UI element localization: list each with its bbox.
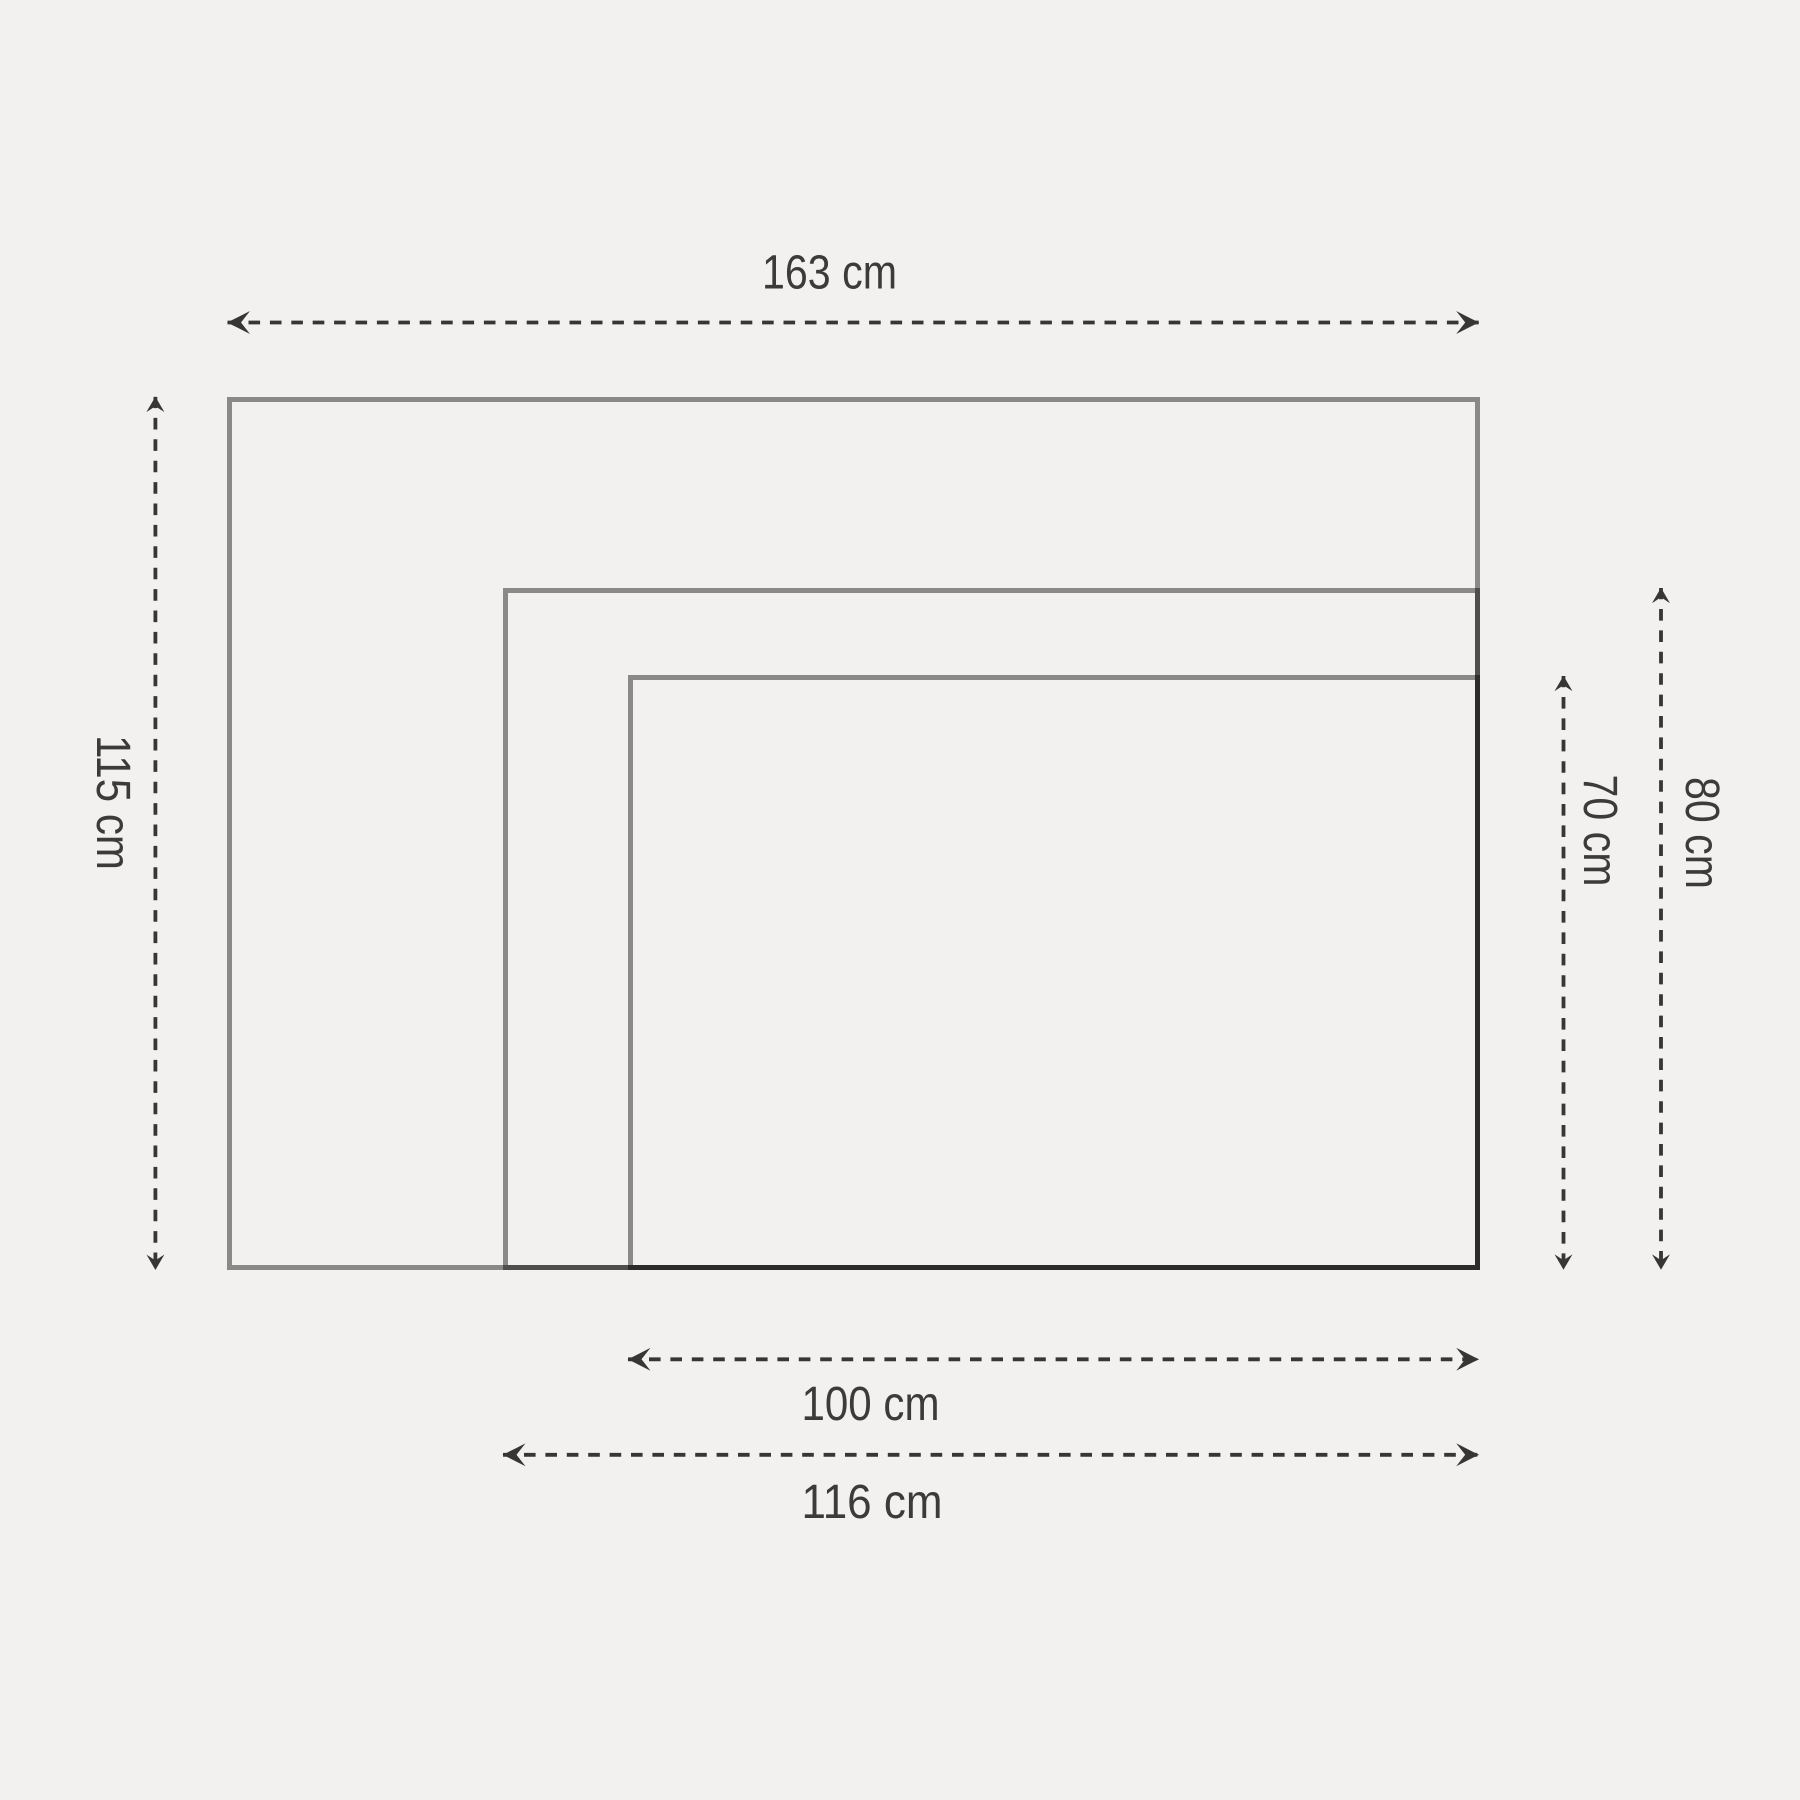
svg-text:115 cm: 115 cm bbox=[86, 735, 139, 870]
svg-text:80 cm: 80 cm bbox=[1675, 777, 1728, 889]
svg-text:100 cm: 100 cm bbox=[802, 1378, 940, 1431]
svg-text:70 cm: 70 cm bbox=[1573, 775, 1626, 887]
svg-text:163 cm: 163 cm bbox=[762, 247, 897, 300]
svg-text:116 cm: 116 cm bbox=[802, 1476, 943, 1529]
